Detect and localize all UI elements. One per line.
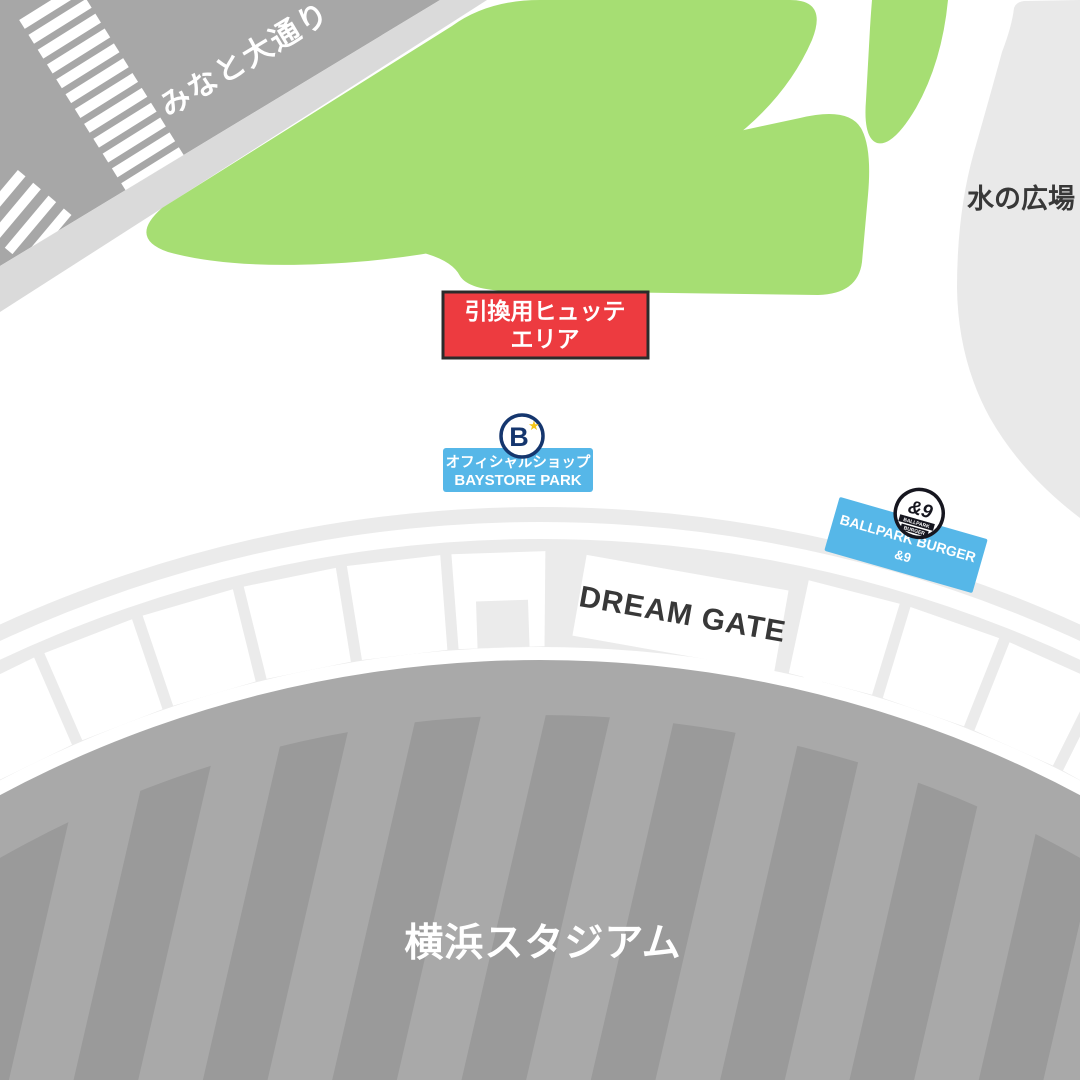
gate-notch xyxy=(476,600,530,649)
baystars-logo-star-icon: ★ xyxy=(528,418,540,433)
exchange-hut-label-line1: 引換用ヒュッテ xyxy=(465,298,626,324)
baystore-label-line2: BAYSTORE PARK xyxy=(454,472,581,489)
water-plaza-label: 水の広場 xyxy=(967,183,1075,214)
exchange-hut-badge: 引換用ヒュッテ エリア xyxy=(443,292,648,358)
baystars-logo-letter: B xyxy=(509,422,529,452)
stadium-name-label: 横浜スタジアム xyxy=(404,922,681,965)
exchange-hut-label-line2: エリア xyxy=(511,326,580,352)
map-canvas: みなと大通り 水の広場 DREAM GATE 横浜スタジアム 引換用ヒュッテ エ… xyxy=(0,0,1080,1080)
gate-section xyxy=(347,555,451,660)
stadium-area-map: みなと大通り 水の広場 DREAM GATE 横浜スタジアム 引換用ヒュッテ エ… xyxy=(0,0,1080,1080)
